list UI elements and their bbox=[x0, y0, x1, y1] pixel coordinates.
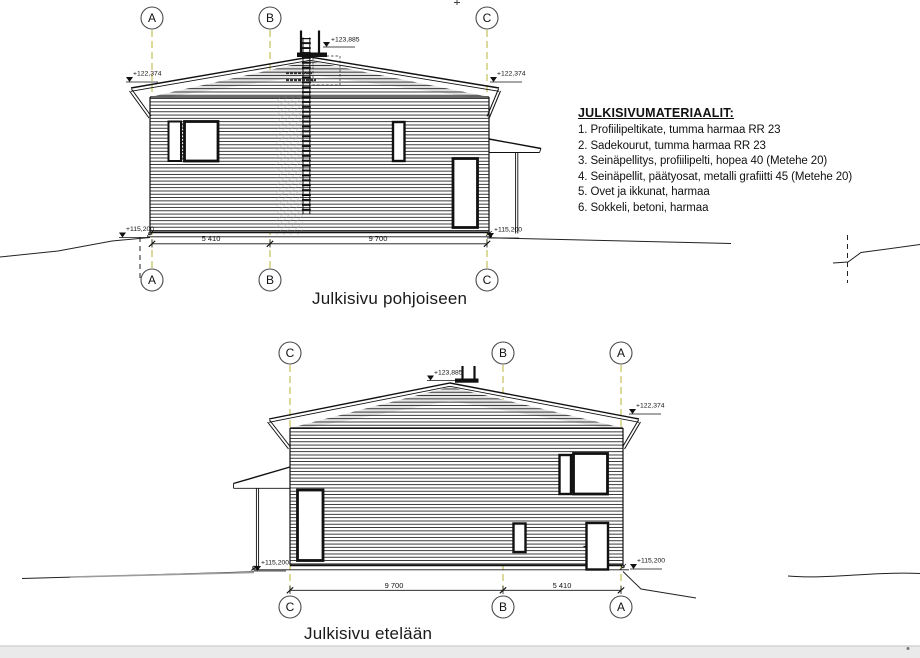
svg-text:+115,200: +115,200 bbox=[126, 226, 154, 233]
level-marker-eave-right-north: +122,374 bbox=[490, 71, 526, 83]
svg-text:+122,374: +122,374 bbox=[133, 71, 162, 78]
south-elevation: 9 700 5 410 +123,885 +122,374 +115,200 +… bbox=[22, 342, 920, 618]
drawing-sheet: 5 410 9 700 +123,885 +122,374 +122,374 +… bbox=[0, 0, 920, 658]
level-marker-eave-left-north: +122,374 bbox=[126, 71, 162, 83]
level-marker-eave-right-south: +122,374 bbox=[629, 403, 665, 415]
drawing-canvas: 5 410 9 700 +123,885 +122,374 +122,374 +… bbox=[0, 0, 920, 658]
dim-label: 9 700 bbox=[385, 581, 404, 590]
north-dimension-line bbox=[149, 240, 490, 248]
materials-item: 5. Ovet ja ikkunat, harmaa bbox=[578, 185, 908, 201]
svg-text:+115,200: +115,200 bbox=[494, 227, 522, 234]
dim-label: 5 410 bbox=[553, 581, 572, 590]
grid-bubble: B bbox=[492, 596, 514, 618]
roof-ladder bbox=[302, 38, 311, 215]
svg-text:C: C bbox=[483, 11, 492, 25]
svg-text:B: B bbox=[499, 346, 507, 360]
materials-item: 4. Seinäpellit, päätyosat, metalli grafi… bbox=[578, 170, 908, 186]
window bbox=[560, 455, 572, 494]
grid-bubble: C bbox=[279, 596, 301, 618]
svg-text:+123,885: +123,885 bbox=[331, 37, 360, 44]
materials-title: JULKISIVUMATERIAALIT: bbox=[578, 106, 908, 120]
window bbox=[393, 122, 405, 161]
svg-text:B: B bbox=[499, 600, 507, 614]
svg-text:+115,200: +115,200 bbox=[261, 560, 289, 567]
north-ground-lines bbox=[0, 235, 920, 283]
svg-text:A: A bbox=[148, 273, 156, 287]
chimney bbox=[297, 31, 327, 58]
grid-bubble: C bbox=[476, 7, 498, 29]
north-elevation-title: Julkisivu pohjoiseen bbox=[312, 289, 467, 309]
grid-bubble: B bbox=[492, 342, 514, 364]
level-marker-floor-left-south: +115,200 bbox=[254, 560, 289, 572]
svg-text:+123,885: +123,885 bbox=[434, 370, 463, 377]
window bbox=[169, 122, 182, 162]
svg-text:C: C bbox=[286, 346, 295, 360]
level-marker-floor-left-north: +115,200 bbox=[119, 226, 154, 238]
level-marker-floor-right-south: +115,200 bbox=[630, 558, 665, 570]
svg-text:A: A bbox=[617, 600, 625, 614]
south-dimension-line bbox=[287, 586, 624, 594]
grid-bubble: A bbox=[141, 269, 163, 291]
south-elevation-title: Julkisivu etelään bbox=[304, 624, 432, 644]
north-canopy bbox=[489, 139, 541, 234]
svg-text:A: A bbox=[148, 11, 156, 25]
window bbox=[514, 524, 526, 553]
south-building bbox=[234, 366, 641, 571]
wall-siding bbox=[150, 97, 489, 232]
south-ground-lines bbox=[22, 572, 920, 599]
materials-item: 6. Sokkeli, betoni, harmaa bbox=[578, 201, 908, 217]
grid-bubble: C bbox=[476, 269, 498, 291]
svg-text:B: B bbox=[266, 11, 274, 25]
level-marker-floor-right-north: +115,200 bbox=[487, 227, 522, 239]
gable-siding bbox=[292, 387, 621, 428]
grid-bubble: B bbox=[259, 7, 281, 29]
grid-bubble: A bbox=[610, 596, 632, 618]
svg-text:+122,374: +122,374 bbox=[497, 71, 526, 78]
svg-text:C: C bbox=[286, 600, 295, 614]
svg-text:+115,200: +115,200 bbox=[637, 558, 665, 565]
door bbox=[587, 523, 609, 570]
grid-bubble: B bbox=[259, 269, 281, 291]
wall-siding bbox=[290, 428, 623, 565]
svg-text:B: B bbox=[266, 273, 274, 287]
materials-item: 3. Seinäpellitys, profiilipelti, hopea 4… bbox=[578, 154, 908, 170]
page-edge-band bbox=[0, 646, 920, 658]
window bbox=[574, 454, 608, 495]
north-building bbox=[130, 31, 542, 237]
south-canopy bbox=[234, 467, 291, 567]
grid-bubble: C bbox=[279, 342, 301, 364]
svg-text:A: A bbox=[617, 346, 625, 360]
materials-item: 2. Sadekourut, tumma harmaa RR 23 bbox=[578, 139, 908, 155]
svg-text:C: C bbox=[483, 273, 492, 287]
materials-list: JULKISIVUMATERIAALIT: 1. Profiilipeltika… bbox=[578, 106, 908, 216]
stair-ghost bbox=[276, 96, 303, 235]
door bbox=[298, 490, 324, 561]
grid-bubble: A bbox=[610, 342, 632, 364]
dim-label: 9 700 bbox=[369, 234, 388, 243]
stray-mark bbox=[454, 0, 460, 5]
grid-bubble: A bbox=[141, 7, 163, 29]
svg-text:+122,374: +122,374 bbox=[636, 403, 665, 410]
dim-label: 5 410 bbox=[202, 234, 221, 243]
window bbox=[185, 122, 219, 162]
door-window bbox=[453, 159, 478, 228]
level-marker-ridge-north: +123,885 bbox=[323, 37, 360, 48]
materials-item: 1. Profiilipeltikate, tumma harmaa RR 23 bbox=[578, 123, 908, 139]
